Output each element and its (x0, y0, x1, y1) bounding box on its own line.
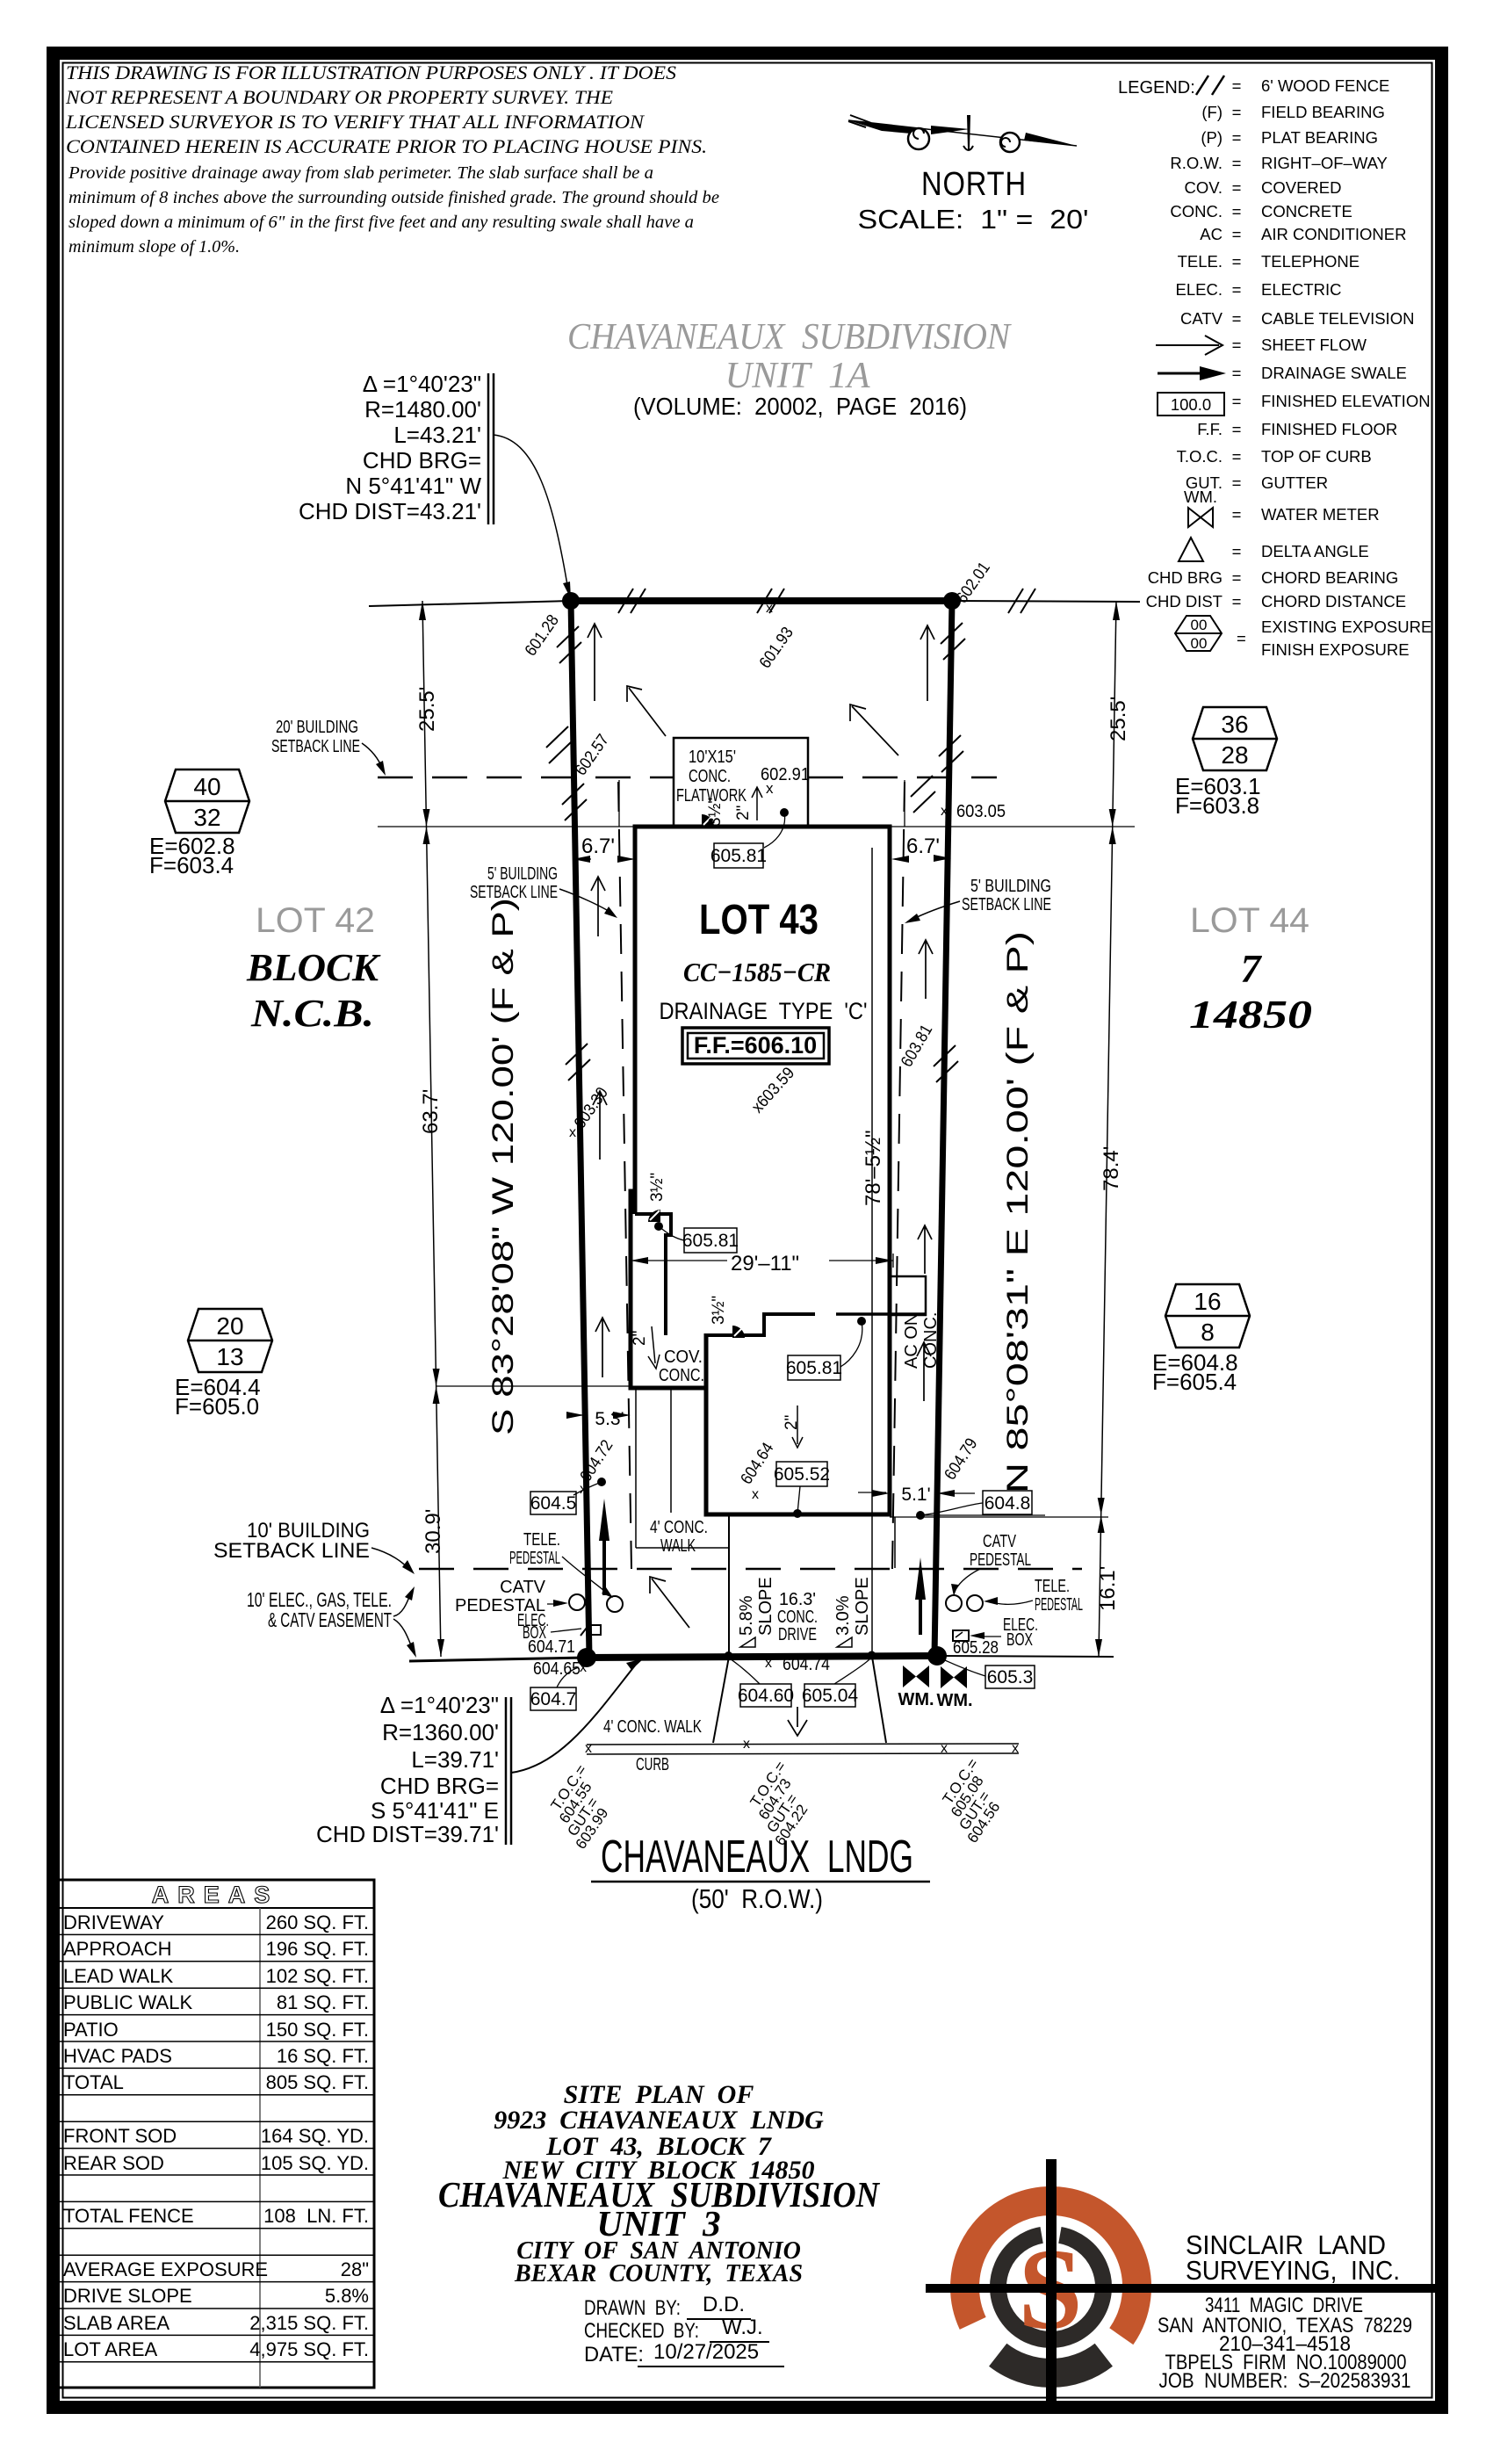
svg-text:F=603.4: F=603.4 (149, 852, 234, 878)
svg-text:28": 28" (341, 2258, 369, 2280)
svg-text:CHORD BEARING: CHORD BEARING (1261, 568, 1398, 587)
svg-text:=: = (1232, 542, 1242, 560)
svg-text:CHAVANEAUX LNDG: CHAVANEAUX LNDG (601, 1832, 913, 1882)
svg-text:3.0%: 3.0% (833, 1595, 853, 1636)
svg-text:Δ =1°40'23": Δ =1°40'23" (380, 1692, 499, 1718)
svg-text:CATV: CATV (1180, 309, 1223, 328)
svg-text:32: 32 (193, 804, 220, 831)
svg-text:S 83°28'08" W 120.00' (F & P): S 83°28'08" W 120.00' (F & P) (487, 898, 520, 1435)
svg-text:x: x (743, 1737, 750, 1752)
svg-text:2,315 SQ. FT.: 2,315 SQ. FT. (249, 2312, 369, 2334)
svg-text:LOT AREA: LOT AREA (63, 2338, 158, 2360)
svg-text:3½": 3½" (710, 1296, 728, 1325)
svg-text:THIS DRAWING IS FOR ILLUSTRATI: THIS DRAWING IS FOR ILLUSTRATION PURPOSE… (66, 61, 676, 83)
svg-text:BLOCK: BLOCK (246, 946, 381, 989)
svg-text:HVAC PADS: HVAC PADS (63, 2045, 172, 2067)
svg-text:=: = (1232, 568, 1242, 587)
svg-text:D.D.: D.D. (703, 2293, 745, 2316)
svg-text:29'–11": 29'–11" (731, 1252, 799, 1275)
svg-text:x: x (766, 780, 774, 797)
svg-text:CONC.: CONC. (1170, 202, 1223, 220)
svg-text:L=39.71': L=39.71' (411, 1746, 499, 1773)
svg-text:NORTH: NORTH (921, 166, 1027, 203)
svg-text:F.F.: F.F. (1197, 420, 1223, 438)
svg-text:DATE:: DATE: (584, 2343, 644, 2366)
svg-text:3½": 3½" (706, 798, 725, 827)
svg-text:CHD DIST=39.71': CHD DIST=39.71' (316, 1821, 499, 1847)
svg-text:28: 28 (1221, 741, 1248, 769)
svg-text:CONC.: CONC. (689, 767, 731, 786)
svg-text:5.8%: 5.8% (325, 2285, 369, 2307)
svg-text:FINISHED FLOOR: FINISHED FLOOR (1261, 420, 1397, 438)
svg-text:4' CONC. WALK: 4' CONC. WALK (603, 1717, 703, 1737)
svg-text:TELE.: TELE. (1035, 1577, 1070, 1596)
svg-text:36: 36 (1221, 711, 1248, 738)
svg-text:7: 7 (1241, 946, 1263, 991)
svg-text:604.7: 604.7 (530, 1689, 577, 1709)
svg-text:FINISHED ELEVATION: FINISHED ELEVATION (1261, 392, 1431, 410)
svg-text:63.7': 63.7' (419, 1089, 443, 1134)
svg-text:GUTTER: GUTTER (1261, 473, 1328, 492)
svg-text:SETBACK LINE: SETBACK LINE (271, 737, 360, 756)
svg-text:6' WOOD FENCE: 6' WOOD FENCE (1261, 76, 1389, 95)
svg-text:Provide positive drainage away: Provide positive drainage away from slab… (68, 164, 653, 183)
svg-text:CHD BRG=: CHD BRG= (380, 1773, 499, 1799)
svg-text:604.5: 604.5 (530, 1493, 577, 1514)
svg-text:x: x (569, 1125, 576, 1140)
svg-text:WM.: WM. (1184, 488, 1217, 506)
svg-text:DRIVEWAY: DRIVEWAY (63, 1911, 164, 1933)
svg-text:604.60: 604.60 (738, 1686, 794, 1706)
svg-text:AREAS: AREAS (152, 1882, 279, 1908)
svg-text:T.O.C.: T.O.C. (1177, 447, 1223, 466)
svg-text:260 SQ. FT.: 260 SQ. FT. (266, 1911, 369, 1933)
svg-text:00: 00 (1191, 635, 1208, 652)
svg-text:CHD DIST=43.21': CHD DIST=43.21' (299, 498, 481, 524)
svg-text:TELEPHONE: TELEPHONE (1261, 252, 1360, 271)
svg-text:N.C.B.: N.C.B. (250, 992, 374, 1035)
svg-text:L=43.21': L=43.21' (393, 422, 481, 448)
svg-text:SETBACK LINE: SETBACK LINE (962, 895, 1051, 914)
svg-text:CHD BRG=: CHD BRG= (363, 447, 481, 473)
svg-text:LEAD WALK: LEAD WALK (63, 1965, 173, 1987)
svg-text:CATV: CATV (983, 1532, 1016, 1551)
svg-text:10/27/2025: 10/27/2025 (653, 2340, 759, 2364)
svg-text:F=605.4: F=605.4 (1152, 1369, 1237, 1395)
svg-text:TELE.: TELE. (1178, 252, 1223, 271)
svg-text:x: x (950, 595, 957, 610)
svg-text:DRIVE: DRIVE (778, 1625, 817, 1644)
svg-text:40: 40 (193, 773, 220, 800)
svg-text:TOTAL: TOTAL (63, 2071, 124, 2093)
svg-text:NOT REPRESENT A BOUNDARY OR PR: NOT REPRESENT A BOUNDARY OR PROPERTY SUR… (65, 86, 614, 108)
svg-text:805 SQ. FT.: 805 SQ. FT. (266, 2071, 369, 2093)
svg-text:5.8%: 5.8% (737, 1595, 756, 1636)
svg-text:8: 8 (1201, 1319, 1215, 1346)
svg-text:W.J.: W.J. (722, 2316, 763, 2339)
svg-text:R=1360.00': R=1360.00' (382, 1719, 499, 1745)
svg-text:=: = (1232, 154, 1242, 172)
svg-text:x: x (941, 1741, 948, 1756)
svg-text:x: x (580, 1660, 587, 1675)
svg-text:=: = (1232, 473, 1242, 492)
svg-text:2": 2" (783, 1415, 801, 1430)
svg-text:DRAINAGE TYPE 'C': DRAINAGE TYPE 'C' (660, 998, 868, 1024)
svg-text:CHD BRG: CHD BRG (1148, 568, 1223, 587)
svg-text:9923 CHAVANEAUX LNDG: 9923 CHAVANEAUX LNDG (494, 2106, 824, 2135)
svg-text:DELTA ANGLE: DELTA ANGLE (1261, 542, 1369, 560)
svg-text:2": 2" (734, 806, 753, 820)
svg-text:LOT 43: LOT 43 (699, 897, 819, 943)
svg-text:=: = (1232, 364, 1242, 382)
svg-text:PEDESTAL: PEDESTAL (509, 1549, 560, 1568)
svg-text:=: = (1232, 336, 1242, 354)
svg-text:COV.: COV. (1184, 178, 1223, 197)
svg-text:RIGHT–OF–WAY: RIGHT–OF–WAY (1261, 154, 1388, 172)
svg-text:81 SQ. FT.: 81 SQ. FT. (277, 1991, 369, 2013)
svg-text:COV.: COV. (664, 1348, 703, 1367)
svg-text:=: = (1232, 280, 1242, 299)
svg-text:=: = (1232, 76, 1242, 95)
svg-text:196 SQ. FT.: 196 SQ. FT. (266, 1938, 369, 1960)
svg-text:PATIO: PATIO (63, 2019, 119, 2041)
svg-text:SHEET FLOW: SHEET FLOW (1261, 336, 1367, 354)
svg-text:DRAWN BY:: DRAWN BY: (584, 2296, 681, 2320)
svg-text:=: = (1232, 392, 1242, 410)
svg-text:(F): (F) (1201, 103, 1223, 121)
svg-text:SCALE: 1" = 20': SCALE: 1" = 20' (858, 204, 1089, 235)
svg-text:13: 13 (216, 1343, 243, 1370)
svg-text:FIELD BEARING: FIELD BEARING (1261, 103, 1385, 121)
svg-text:PEDESTAL: PEDESTAL (970, 1550, 1031, 1570)
svg-text:14850: 14850 (1189, 992, 1312, 1037)
svg-text:APPROACH: APPROACH (63, 1938, 171, 1960)
svg-text:TOP OF CURB: TOP OF CURB (1261, 447, 1372, 466)
svg-text:78.4': 78.4' (1100, 1146, 1123, 1191)
svg-text:603.05: 603.05 (956, 802, 1006, 821)
svg-text:00: 00 (1191, 617, 1208, 633)
svg-text:=: = (1232, 103, 1242, 121)
svg-text:BEXAR COUNTY, TEXAS: BEXAR COUNTY, TEXAS (514, 2260, 803, 2287)
svg-text:x: x (765, 1656, 772, 1671)
svg-text:sloped down a minimum of 6" in: sloped down a minimum of 6" in the first… (69, 213, 694, 232)
svg-text:605.04: 605.04 (802, 1686, 859, 1706)
svg-text:REAR SOD: REAR SOD (63, 2152, 164, 2174)
svg-text:605.52: 605.52 (774, 1464, 830, 1485)
svg-text:=: = (1232, 178, 1242, 197)
svg-text:SLAB AREA: SLAB AREA (63, 2312, 169, 2334)
svg-text:=: = (1232, 128, 1242, 147)
svg-text:5' BUILDING: 5' BUILDING (970, 877, 1051, 896)
svg-text:DRAINAGE SWALE: DRAINAGE SWALE (1261, 364, 1407, 382)
svg-text:5.3': 5.3' (595, 1409, 624, 1429)
svg-text:minimum slope of 1.0%.: minimum slope of 1.0%. (69, 238, 240, 257)
svg-text:602.57: 602.57 (572, 731, 613, 779)
svg-text:605.81: 605.81 (710, 846, 767, 866)
svg-text:F=605.0: F=605.0 (175, 1393, 259, 1420)
svg-text:=: = (1232, 592, 1242, 611)
svg-text:78'–5½": 78'–5½" (862, 1130, 885, 1206)
svg-text:AC: AC (1200, 225, 1223, 243)
svg-text:PEDESTAL: PEDESTAL (1035, 1595, 1083, 1615)
svg-text:TOTAL FENCE: TOTAL FENCE (63, 2205, 194, 2227)
svg-text:604.64: 604.64 (738, 1439, 778, 1487)
svg-text:601.93: 601.93 (756, 624, 797, 672)
svg-text:(50' R.O.W.): (50' R.O.W.) (691, 1883, 823, 1914)
svg-text:ELECTRIC: ELECTRIC (1261, 280, 1342, 299)
svg-text:WATER METER: WATER METER (1261, 505, 1380, 524)
svg-text:605.81: 605.81 (682, 1231, 739, 1251)
svg-text:AIR CONDITIONER: AIR CONDITIONER (1261, 225, 1406, 243)
svg-text:CHD DIST: CHD DIST (1146, 592, 1223, 611)
svg-text:164 SQ. YD.: 164 SQ. YD. (261, 2125, 369, 2147)
svg-text:SURVEYING, INC.: SURVEYING, INC. (1186, 2255, 1400, 2286)
svg-text:16 SQ. FT.: 16 SQ. FT. (277, 2045, 369, 2067)
svg-text:N 85°08'31" E 120.00' (F & P): N 85°08'31" E 120.00' (F & P) (1001, 931, 1035, 1493)
svg-text:LEGEND:: LEGEND: (1118, 78, 1195, 98)
svg-text:ELEC.: ELEC. (1176, 280, 1223, 299)
svg-text:WALK: WALK (660, 1536, 696, 1556)
svg-text:FRONT SOD: FRONT SOD (63, 2125, 177, 2147)
svg-text:604.8: 604.8 (985, 1493, 1031, 1514)
svg-text:& CATV EASEMENT: & CATV EASEMENT (268, 1608, 392, 1631)
svg-text:F=603.8: F=603.8 (1175, 792, 1259, 819)
svg-text:4,975 SQ. FT.: 4,975 SQ. FT. (249, 2338, 369, 2360)
svg-text:CHORD DISTANCE: CHORD DISTANCE (1261, 592, 1406, 611)
svg-text:JOB NUMBER: S–202583931: JOB NUMBER: S–202583931 (1159, 2369, 1411, 2393)
svg-text:CC−1585−CR: CC−1585−CR (683, 957, 831, 987)
svg-text:604.79: 604.79 (941, 1435, 982, 1484)
svg-text:PLAT BEARING: PLAT BEARING (1261, 128, 1378, 147)
svg-text:minimum of 8 inches above the: minimum of 8 inches above the surroundin… (69, 189, 719, 207)
svg-text:x: x (766, 601, 773, 616)
svg-text:6.7': 6.7' (906, 835, 940, 858)
svg-text:F.F.=606.10: F.F.=606.10 (694, 1032, 817, 1059)
svg-text:x: x (1012, 1741, 1019, 1756)
svg-text:5' BUILDING: 5' BUILDING (487, 864, 558, 884)
svg-text:3½": 3½" (648, 1173, 667, 1202)
svg-text:DRIVE SLOPE: DRIVE SLOPE (63, 2285, 192, 2307)
svg-text:EXISTING EXPOSURE: EXISTING EXPOSURE (1261, 618, 1432, 636)
svg-text:LOT 42: LOT 42 (256, 901, 375, 940)
svg-text:603.81: 603.81 (898, 1022, 936, 1071)
svg-text:601.28: 601.28 (522, 611, 563, 660)
svg-text:x: x (585, 1741, 592, 1756)
svg-text:5.1': 5.1' (901, 1485, 930, 1505)
svg-text:UNIT 1A: UNIT 1A (725, 356, 870, 396)
svg-text:100.0: 100.0 (1171, 395, 1211, 414)
svg-text:605.81: 605.81 (786, 1358, 842, 1378)
svg-text:=: = (1232, 202, 1242, 220)
svg-text:=: = (1237, 629, 1246, 647)
svg-text:20' BUILDING: 20' BUILDING (276, 718, 358, 737)
svg-text:150 SQ. FT.: 150 SQ. FT. (266, 2019, 369, 2041)
svg-text:605.3: 605.3 (987, 1667, 1034, 1687)
svg-text:(VOLUME: 20002, PAGE 2016): (VOLUME: 20002, PAGE 2016) (633, 393, 967, 420)
svg-text:WM.: WM. (936, 1691, 972, 1710)
svg-text:x603.59: x603.59 (748, 1064, 798, 1116)
svg-text:2": 2" (631, 1331, 649, 1346)
svg-text:Δ =1°40'23": Δ =1°40'23" (363, 371, 481, 397)
svg-text:R.O.W.: R.O.W. (1170, 154, 1223, 172)
svg-text:BOX: BOX (1006, 1630, 1033, 1650)
svg-text:30.9': 30.9' (422, 1509, 445, 1554)
svg-text:602.01: 602.01 (953, 559, 994, 607)
svg-text:CURB: CURB (636, 1755, 669, 1774)
svg-text:16.3': 16.3' (779, 1590, 816, 1609)
svg-text:SLOPE: SLOPE (756, 1577, 775, 1636)
svg-text:=: = (1232, 505, 1242, 524)
svg-text:25.5': 25.5' (415, 687, 439, 732)
svg-text:SETBACK LINE: SETBACK LINE (213, 1539, 370, 1563)
svg-text:108 LN. FT.: 108 LN. FT. (263, 2205, 369, 2227)
svg-text:R=1480.00': R=1480.00' (364, 396, 481, 423)
svg-text:604.74: 604.74 (783, 1655, 830, 1674)
svg-text:S 5°41'41" E: S 5°41'41" E (371, 1797, 499, 1824)
svg-text:COVERED: COVERED (1261, 178, 1342, 197)
svg-text:CABLE TELEVISION: CABLE TELEVISION (1261, 309, 1414, 328)
svg-text:CONCRETE: CONCRETE (1261, 202, 1352, 220)
svg-text:20: 20 (216, 1312, 243, 1340)
svg-text:PUBLIC WALK: PUBLIC WALK (63, 1991, 192, 2013)
svg-text:10'X15': 10'X15' (689, 748, 736, 767)
svg-text:CHAVANEAUX SUBDIVISION: CHAVANEAUX SUBDIVISION (567, 317, 1012, 358)
svg-text:6.7': 6.7' (581, 835, 615, 858)
svg-text:LOT 44: LOT 44 (1190, 901, 1309, 940)
svg-text:SLOPE: SLOPE (853, 1577, 872, 1636)
svg-text:=: = (1232, 420, 1242, 438)
svg-text:CONC.: CONC. (777, 1608, 818, 1627)
svg-text:=: = (1232, 309, 1242, 328)
svg-text:x: x (941, 804, 948, 819)
svg-text:105 SQ. YD.: 105 SQ. YD. (261, 2152, 369, 2174)
svg-text:4' CONC.: 4' CONC. (650, 1518, 708, 1537)
svg-text:16: 16 (1194, 1288, 1221, 1315)
svg-text:102 SQ. FT.: 102 SQ. FT. (266, 1965, 369, 1987)
svg-text:CONTAINED HEREIN IS ACCURATE P: CONTAINED HEREIN IS ACCURATE PRIOR TO PL… (66, 135, 707, 157)
svg-text:x: x (752, 1487, 759, 1502)
svg-text:LICENSED SURVEYOR IS TO VERIFY: LICENSED SURVEYOR IS TO VERIFY THAT ALL … (65, 111, 646, 133)
svg-text:CHECKED BY:: CHECKED BY: (584, 2319, 699, 2343)
svg-text:(P): (P) (1201, 128, 1223, 147)
svg-text:TELE.: TELE. (523, 1530, 560, 1550)
svg-text:=: = (1232, 225, 1242, 243)
svg-text:BOX: BOX (523, 1623, 546, 1643)
svg-text:16.1': 16.1' (1096, 1566, 1120, 1611)
svg-text:N 5°41'41" W: N 5°41'41" W (345, 473, 481, 499)
svg-text:AVERAGE EXPOSURE: AVERAGE EXPOSURE (63, 2258, 268, 2280)
svg-text:25.5': 25.5' (1107, 697, 1130, 741)
svg-text:CATV: CATV (500, 1578, 546, 1597)
svg-text:WM.: WM. (898, 1690, 934, 1709)
svg-text:FINISH EXPOSURE: FINISH EXPOSURE (1261, 640, 1410, 659)
svg-text:AC ON: AC ON (902, 1313, 921, 1369)
svg-text:CONC.: CONC. (659, 1366, 704, 1385)
svg-text:=: = (1232, 252, 1242, 271)
svg-text:=: = (1232, 447, 1242, 466)
